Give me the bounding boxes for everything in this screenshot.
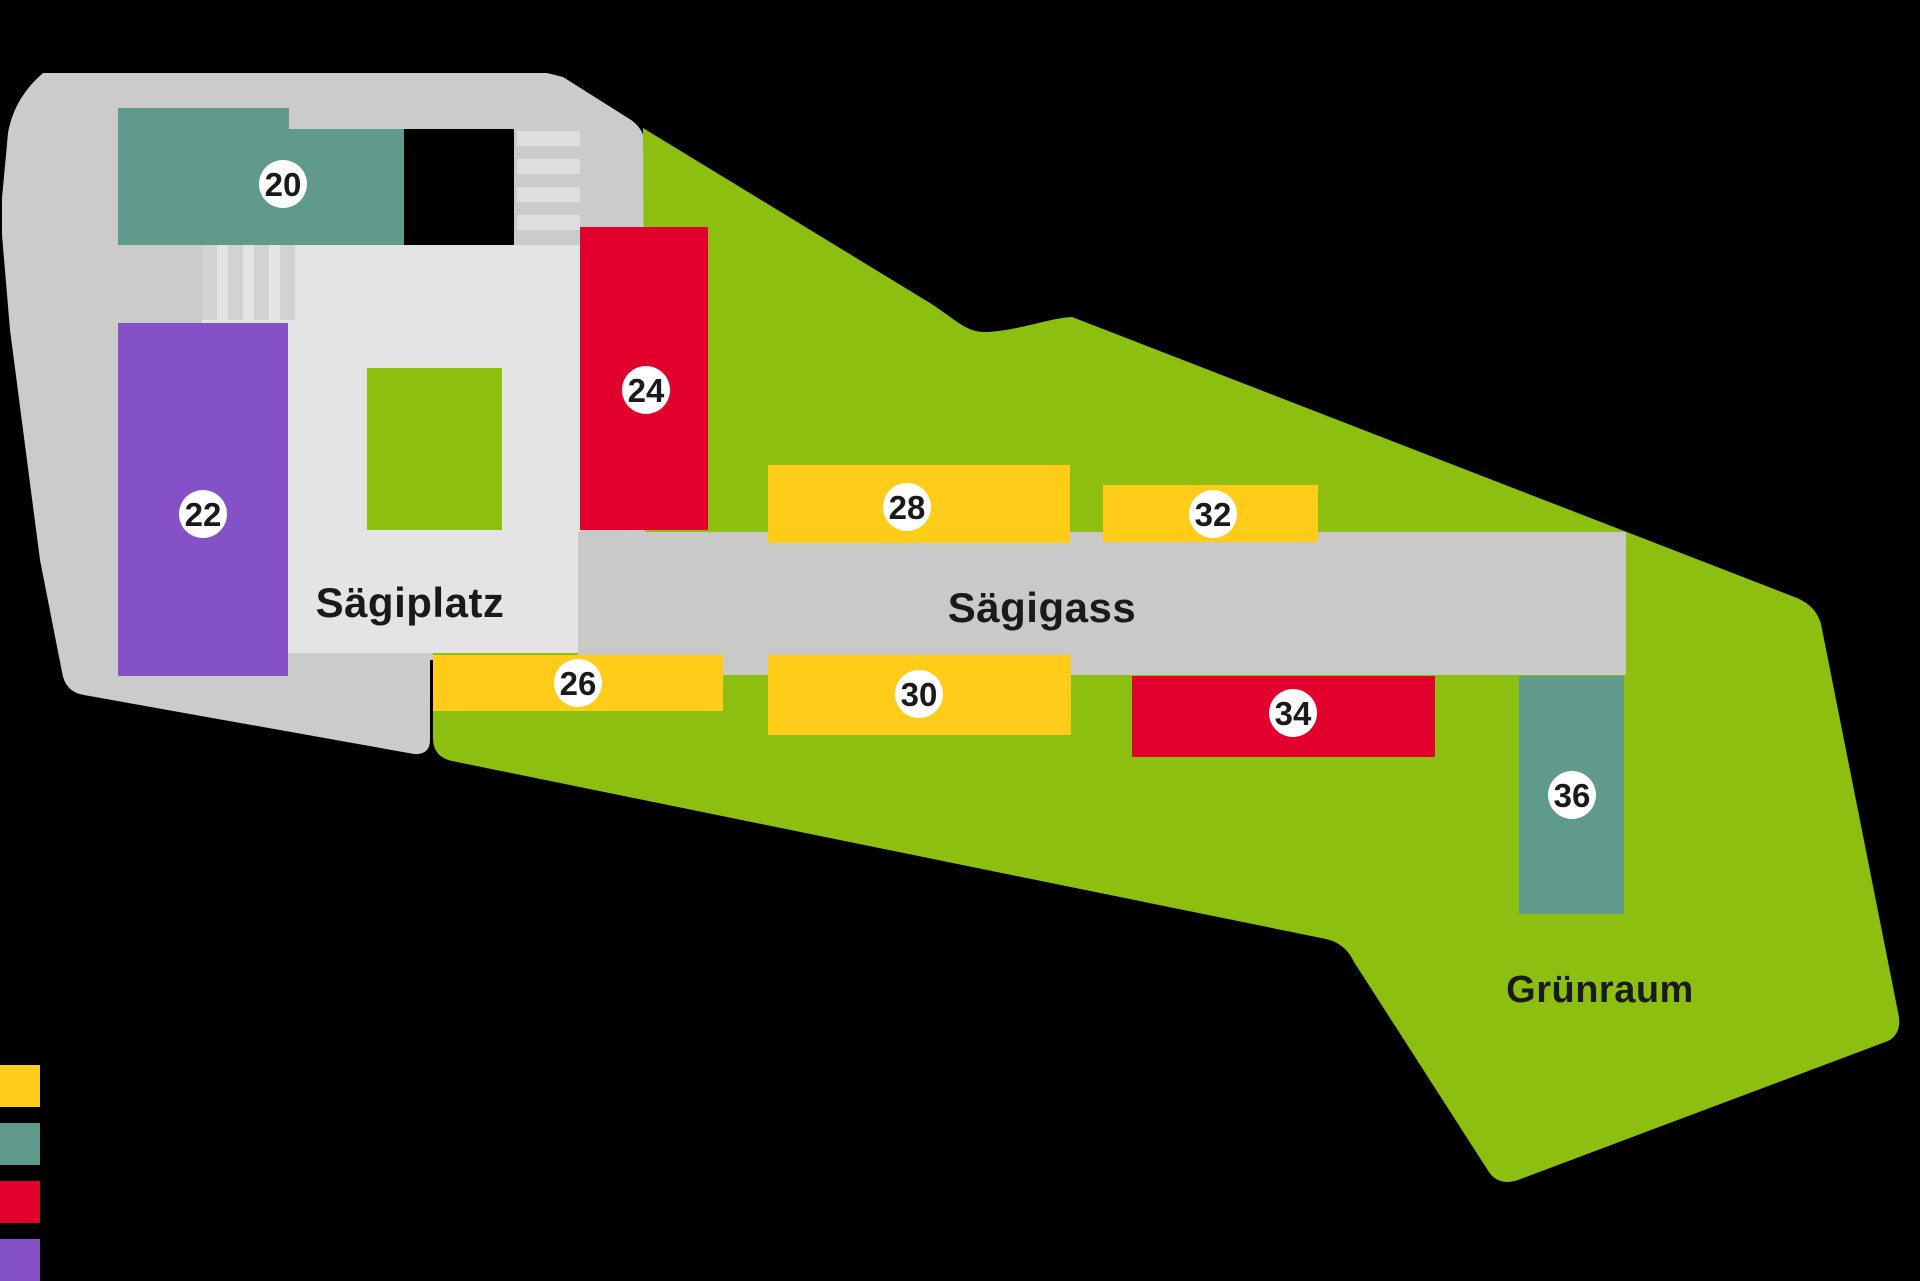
greenspace-label: Grünraum xyxy=(1506,969,1694,1011)
badge-24[interactable]: 24 xyxy=(622,366,670,414)
badge-label: 26 xyxy=(560,665,597,702)
badge-28[interactable]: 28 xyxy=(883,483,931,531)
legend-swatch-yellow xyxy=(0,1065,40,1107)
plaza-green-square xyxy=(367,368,502,530)
building-black[interactable] xyxy=(404,129,514,245)
badge-label: 24 xyxy=(628,372,665,409)
badge-36[interactable]: 36 xyxy=(1548,771,1596,819)
site-plan-map: 20 22 24 26 28 30 32 34 36 Sägiplatz Säg… xyxy=(0,0,1920,1281)
badge-label: 34 xyxy=(1275,695,1312,732)
stripe xyxy=(280,245,295,320)
stripe xyxy=(517,215,580,230)
badge-label: 20 xyxy=(265,166,302,203)
stripe xyxy=(517,131,580,146)
street-label: Sägigass xyxy=(948,584,1136,631)
stripe xyxy=(517,187,580,202)
badge-label: 36 xyxy=(1554,777,1591,814)
badge-26[interactable]: 26 xyxy=(554,659,602,707)
stripe xyxy=(254,245,269,320)
stripe xyxy=(228,245,243,320)
stripe xyxy=(517,159,580,174)
badge-label: 32 xyxy=(1195,496,1232,533)
badge-20[interactable]: 20 xyxy=(259,160,307,208)
badge-label: 30 xyxy=(901,676,938,713)
legend-swatch-red xyxy=(0,1181,40,1223)
legend-swatch-teal xyxy=(0,1123,40,1165)
badge-30[interactable]: 30 xyxy=(895,670,943,718)
badge-22[interactable]: 22 xyxy=(179,490,227,538)
badge-32[interactable]: 32 xyxy=(1189,490,1237,538)
plaza-label: Sägiplatz xyxy=(316,579,505,626)
badge-34[interactable]: 34 xyxy=(1269,689,1317,737)
legend-swatch-purple xyxy=(0,1239,40,1281)
badge-label: 28 xyxy=(889,489,926,526)
stripe xyxy=(202,245,217,320)
badge-label: 22 xyxy=(185,496,222,533)
